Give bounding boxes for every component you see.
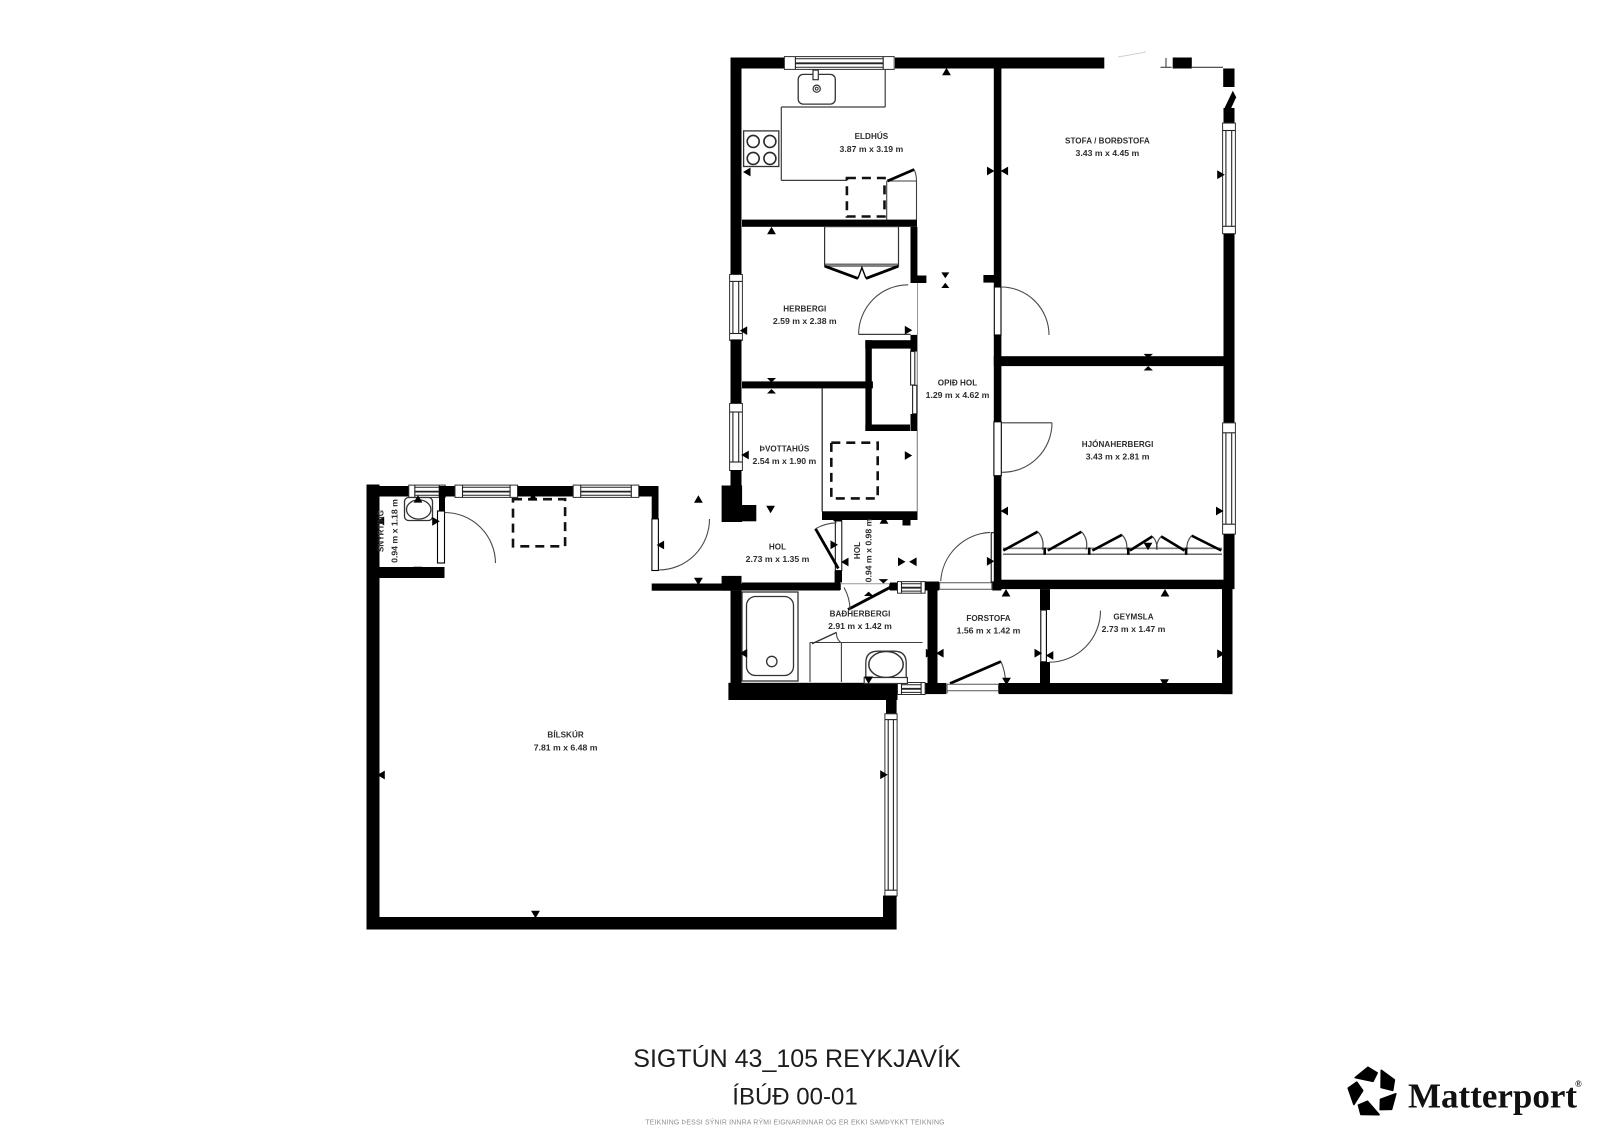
svg-text:BÍLSKÚR: BÍLSKÚR [547, 731, 583, 740]
svg-text:2.73 m x 1.35 m: 2.73 m x 1.35 m [746, 554, 810, 564]
svg-text:ÍBÚÐ 00-01: ÍBÚÐ 00-01 [732, 1084, 857, 1111]
svg-text:ELDHÚS: ELDHÚS [855, 132, 889, 141]
svg-text:HJÓNAHERBERGI: HJÓNAHERBERGI [1082, 440, 1154, 449]
svg-text:FORSTOFA: FORSTOFA [966, 614, 1010, 623]
svg-text:HOL: HOL [769, 543, 786, 552]
svg-text:7.81 m x 6.48 m: 7.81 m x 6.48 m [534, 742, 598, 752]
svg-text:2.59 m x 2.38 m: 2.59 m x 2.38 m [773, 316, 837, 326]
svg-text:0.94 m x 1.18 m: 0.94 m x 1.18 m [390, 499, 400, 563]
svg-text:3.87 m x 3.19 m: 3.87 m x 3.19 m [840, 144, 904, 154]
svg-text:1.29 m x 4.62 m: 1.29 m x 4.62 m [926, 390, 990, 400]
svg-text:ÞVOTTAHÚS: ÞVOTTAHÚS [760, 444, 810, 453]
svg-text:OPIÐ HOL: OPIÐ HOL [938, 378, 978, 387]
svg-text:0.94 m x 0.98 m: 0.94 m x 0.98 m [864, 518, 874, 582]
svg-text:GEYMSLA: GEYMSLA [1113, 613, 1153, 622]
svg-text:2.54 m x 1.90 m: 2.54 m x 1.90 m [753, 456, 817, 466]
svg-text:SNYRTING: SNYRTING [377, 510, 386, 552]
svg-text:1.56 m x 1.42 m: 1.56 m x 1.42 m [957, 625, 1021, 635]
svg-text:STOFA / BORÐSTOFA: STOFA / BORÐSTOFA [1065, 137, 1150, 146]
svg-text:3.43 m x 4.45 m: 3.43 m x 4.45 m [1076, 148, 1140, 158]
svg-text:HERBERGI: HERBERGI [783, 305, 826, 314]
svg-text:2.91 m x 1.42 m: 2.91 m x 1.42 m [828, 621, 892, 631]
svg-text:SIGTÚN 43_105 REYKJAVÍK: SIGTÚN 43_105 REYKJAVÍK [633, 1044, 961, 1073]
svg-text:BAÐHERBERGI: BAÐHERBERGI [830, 609, 891, 618]
svg-text:HOL: HOL [853, 542, 862, 559]
svg-text:TEIKNING ÞESSI SÝNIR INNRA RÝM: TEIKNING ÞESSI SÝNIR INNRA RÝMI EIGNARIN… [645, 1118, 944, 1127]
svg-text:2.73 m x 1.47 m: 2.73 m x 1.47 m [1102, 624, 1166, 634]
svg-text:®: ® [1575, 1079, 1582, 1089]
svg-text:3.43 m x 2.81 m: 3.43 m x 2.81 m [1086, 451, 1150, 461]
svg-text:Matterport: Matterport [1408, 1077, 1577, 1116]
